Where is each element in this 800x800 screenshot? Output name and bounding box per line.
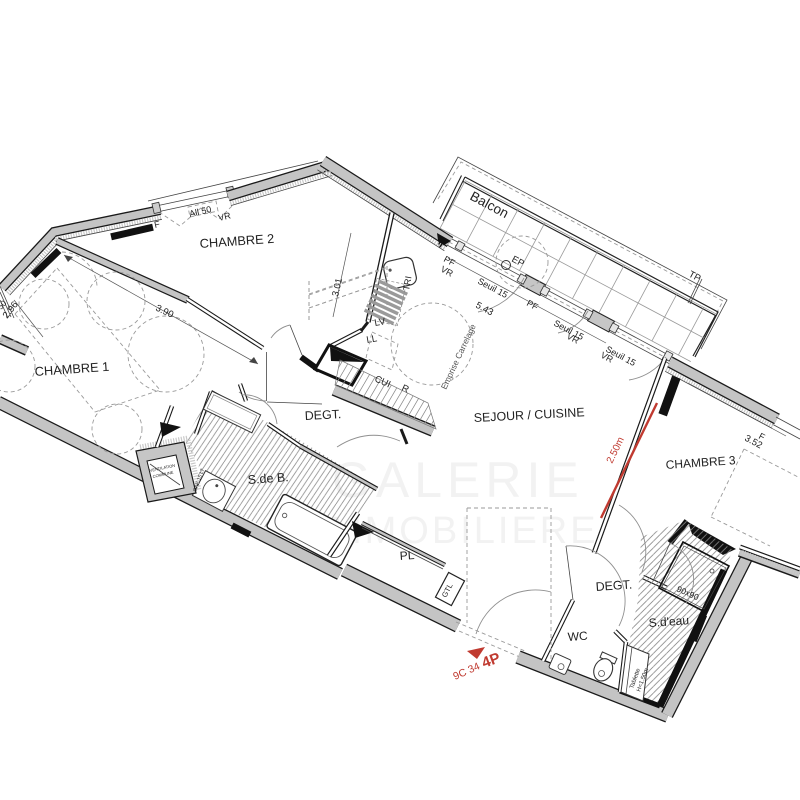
svg-text:S.de B.: S.de B. (247, 470, 289, 487)
svg-text:S.d'eau: S.d'eau (648, 613, 689, 630)
svg-text:WC: WC (567, 629, 588, 644)
svg-text:GALERIE: GALERIE (332, 452, 584, 508)
svg-text:DEGT.: DEGT. (595, 577, 632, 594)
svg-text:PL: PL (399, 548, 415, 563)
svg-text:DEGT.: DEGT. (304, 407, 341, 423)
svg-text:LL: LL (366, 333, 378, 346)
